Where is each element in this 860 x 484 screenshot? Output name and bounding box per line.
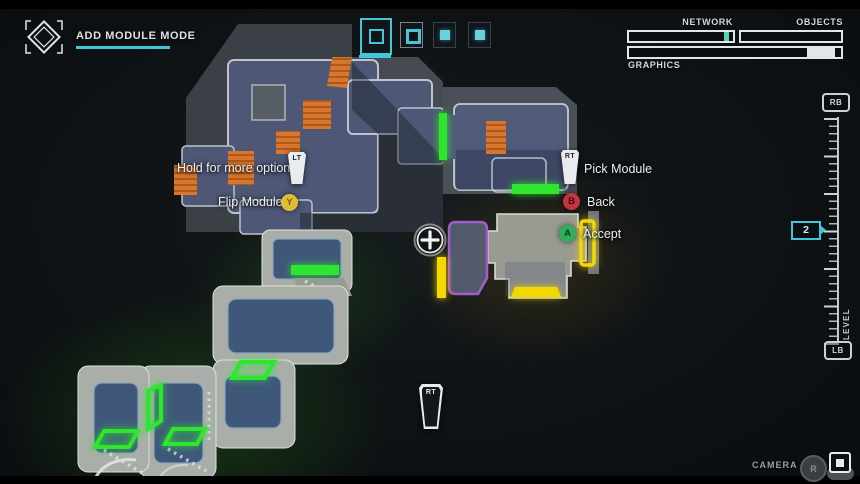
rt-place-trigger-icon: RT [419,384,443,429]
module-glyph-icon [406,29,421,44]
trigger-label: LT [288,155,306,162]
view-button-icon [829,452,851,473]
page-title: ADD MODULE MODE [76,30,196,42]
trigger-label: RT [561,153,579,160]
y-button-icon: Y [281,194,298,211]
graphics-label: GRAPHICS [628,60,680,70]
hold-hint-label: Hold for more options [177,161,297,175]
module-slot-4[interactable] [468,22,491,48]
graphics-meter-segment [807,48,835,57]
map-right-room [443,87,577,194]
level-indicator-arrow [820,225,826,235]
module-glyph-icon [440,30,450,40]
lt-trigger-icon: LT [288,152,306,184]
module-slot-2[interactable] [400,22,423,48]
game-screen: { "header": { "title": "ADD MODULE MODE"… [0,0,860,484]
add-module-mode-icon [20,13,68,61]
module-outline-purple [449,222,487,294]
accept-hint-label: Accept [583,227,621,241]
network-meter [627,30,735,43]
view-button-square [836,459,844,467]
module-glyph-icon [475,30,485,40]
objects-label: OBJECTS [739,17,843,27]
lb-bumper-icon: LB [824,341,852,360]
rt-trigger-icon: RT [561,150,579,184]
rb-bumper-icon: RB [822,93,850,112]
right-stick-icon: R [800,455,827,482]
level-axis-label: LEVEL [842,308,851,340]
letterbox-top [0,0,860,9]
graphics-meter [627,46,843,59]
back-hint-label: Back [587,195,615,209]
network-meter-marker [724,32,729,41]
crosshair-cursor [415,225,446,256]
selected-slot-underline [359,55,391,58]
flip-module-hint-label: Flip Module [218,195,283,209]
pick-module-hint-label: Pick Module [584,162,652,176]
module-slot-3[interactable] [433,22,456,48]
level-ruler-line [837,117,839,345]
letterbox-bottom [0,476,860,484]
camera-label: CAMERA [752,460,798,470]
objects-meter [739,30,843,43]
map-upper-complex [174,24,444,246]
mode-title-underline [76,46,170,49]
map-inner-block [252,85,285,120]
network-label: NETWORK [627,17,733,27]
level-indicator[interactable]: 2 [791,221,821,240]
a-button-icon: A [559,225,576,242]
module-slot-selected[interactable] [360,18,392,55]
b-button-icon: B [563,193,580,210]
module-glyph-icon [369,29,384,44]
trigger-label: RT [419,389,443,396]
map-ramp [486,121,506,154]
